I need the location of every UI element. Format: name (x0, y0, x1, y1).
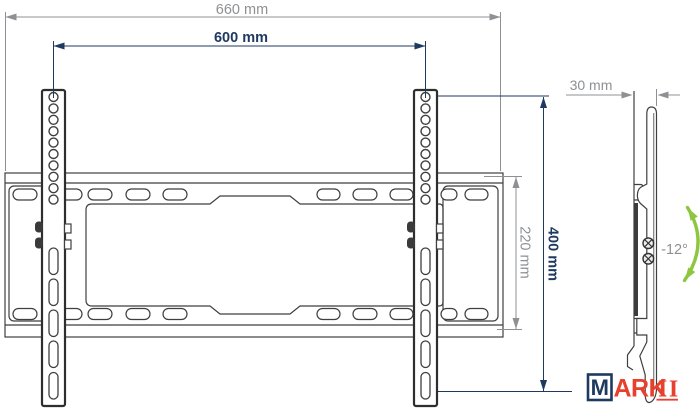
bracket-slot (421, 248, 430, 275)
side-wall-plate-section (634, 203, 638, 316)
arrowhead (540, 97, 547, 108)
bracket-hole (49, 115, 58, 124)
plate-slot (88, 309, 112, 320)
bracket-slot (49, 310, 58, 337)
dim-mount-width-label: 600 mm (214, 30, 268, 46)
bracket-hole (49, 195, 58, 204)
bracket-slot (421, 341, 430, 368)
bracket-hole (49, 138, 58, 147)
logo-boxed-letter: M (591, 375, 609, 400)
bracket-hole (49, 127, 58, 136)
arrowhead (540, 380, 547, 391)
logo-suffix-underline (657, 399, 679, 401)
plate-slot (13, 189, 37, 200)
plate-slot (13, 309, 37, 320)
plate-slot (88, 189, 112, 200)
bracket-hole (49, 104, 58, 113)
plate-slot (163, 309, 187, 320)
side-view: 30 mm -12° (566, 77, 698, 403)
arrowhead (490, 13, 501, 20)
dimension-mount-width: 600 mm (54, 30, 426, 98)
vesa-bracket-right (407, 90, 443, 406)
plate-slot (390, 189, 413, 200)
brand-logo: M ARK II (588, 375, 680, 403)
wall-plate-right-panel (443, 186, 498, 321)
side-wall-plate-foot (628, 346, 635, 370)
dimension-plate-height: 220 mm (484, 177, 533, 330)
arrowhead (6, 13, 17, 20)
arrowhead (415, 42, 426, 49)
bracket-hole (421, 184, 430, 193)
bracket-knob (407, 238, 415, 249)
bracket-hole (421, 172, 430, 181)
plate-slot (465, 309, 488, 320)
bracket-hole (49, 161, 58, 170)
bracket-hole (421, 127, 430, 136)
dimension-arrowheads (6, 13, 698, 391)
dim-profile-depth-label: 30 mm (570, 77, 613, 93)
plate-slot (441, 309, 457, 320)
bracket-slot (421, 310, 430, 337)
bracket-tab (65, 224, 72, 233)
product-dimension-diagram: 660 mm 600 mm 400 mm 220 mm (0, 0, 700, 410)
arrowhead (622, 91, 633, 98)
plate-slot (126, 309, 150, 320)
tilt-angle-label: -12° (661, 242, 688, 258)
plate-slot (317, 189, 340, 200)
arrowhead (512, 318, 519, 329)
bracket-slot (421, 279, 430, 306)
dim-mount-height-label: 400 mm (545, 227, 561, 281)
dim-plate-height-label: 220 mm (517, 226, 533, 278)
bracket-hole (49, 184, 58, 193)
bracket-tab (437, 224, 444, 233)
plate-slot (353, 309, 377, 320)
vesa-bracket-left (35, 90, 71, 406)
dimension-profile-depth: 30 mm (566, 77, 680, 106)
bracket-hole (421, 115, 430, 124)
bracket-hole (49, 172, 58, 181)
bracket-tab (437, 240, 444, 249)
front-view (5, 90, 503, 406)
plate-slot (126, 189, 150, 200)
bracket-slot (421, 373, 430, 400)
logo-name-suffix: II (658, 377, 680, 403)
plate-slot (390, 309, 413, 320)
bracket-knob (35, 222, 43, 233)
plate-slot (163, 189, 187, 200)
dim-overall-width-label: 660 mm (216, 2, 268, 18)
bracket-slot (49, 373, 58, 400)
bracket-knob (407, 222, 415, 233)
bracket-hole (421, 195, 430, 204)
bracket-slot (49, 341, 58, 368)
bracket-tab (65, 240, 72, 249)
arrowhead (512, 177, 519, 188)
bracket-knob (35, 238, 43, 249)
bracket-hole (421, 138, 430, 147)
arrowhead (54, 42, 65, 49)
bracket-hole (421, 161, 430, 170)
bracket-slot (49, 248, 58, 275)
bracket-hole (421, 104, 430, 113)
plate-slot (353, 189, 377, 200)
technical-drawing: 660 mm 600 mm 400 mm 220 mm (0, 0, 700, 410)
plate-slot (441, 189, 457, 200)
dimension-mount-height: 400 mm (438, 96, 572, 392)
bracket-hole (49, 150, 58, 159)
bracket-hole (421, 150, 430, 159)
plate-slot (317, 309, 340, 320)
arrowhead (658, 91, 669, 98)
plate-slot (465, 189, 488, 200)
wall-plate-emboss-outline (86, 196, 443, 314)
bracket-slot (49, 279, 58, 306)
